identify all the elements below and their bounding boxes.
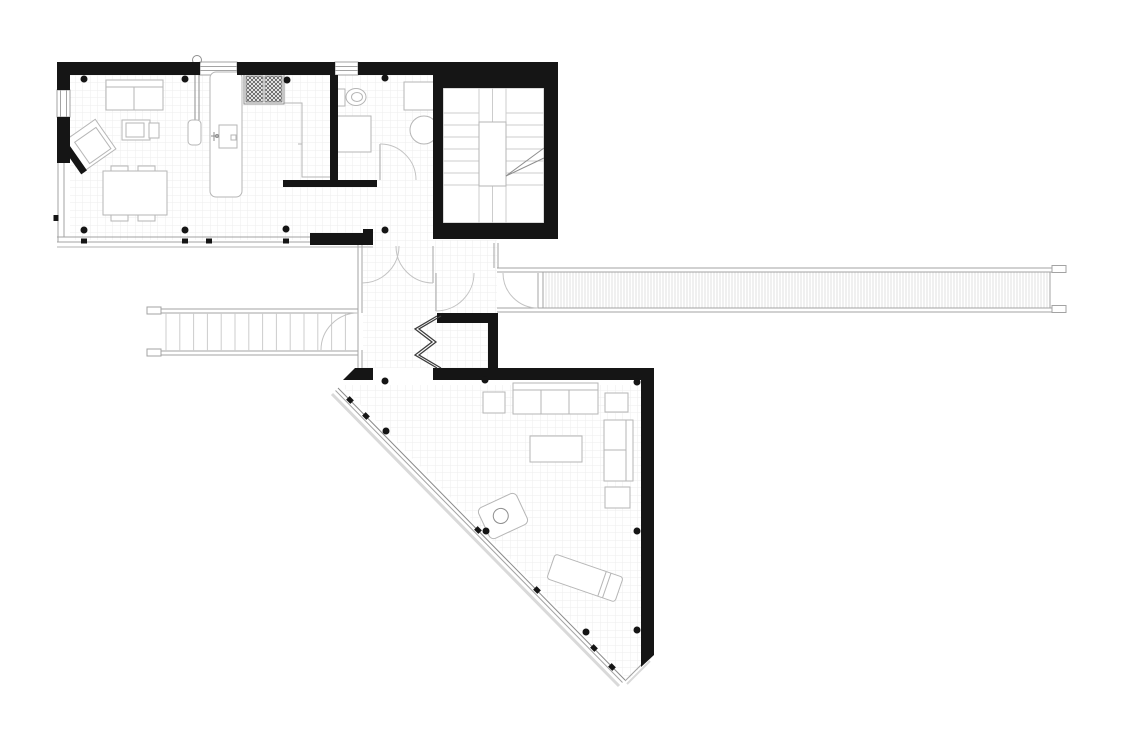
dining-table (103, 171, 167, 215)
wall-north-a (57, 62, 200, 75)
wall-north-b (237, 62, 335, 75)
ottoman (149, 123, 159, 138)
column-dot (634, 528, 641, 535)
mullion-tick (206, 239, 212, 244)
winter-wall-north-tip (343, 368, 373, 380)
shower-tray (337, 116, 371, 152)
bridge-rail-cap (1052, 266, 1066, 273)
cooktop-burner (265, 76, 282, 102)
armchair-seat (126, 123, 144, 137)
side-table (605, 487, 630, 508)
stair-tower-wall-west (433, 62, 443, 225)
column-dot (634, 627, 641, 634)
floor-plan-svg (0, 0, 1125, 750)
washbasin-counter (404, 82, 436, 110)
wall-bath-south (283, 180, 377, 187)
stair-tower-wall-north (433, 62, 558, 88)
column-dot (382, 227, 389, 234)
bridge-door-swing (503, 273, 538, 308)
stair-newel (479, 122, 506, 186)
floor-plan-page (0, 0, 1125, 750)
column-dot (81, 227, 88, 234)
floor-plan-drawing (54, 56, 1067, 687)
column-dot (284, 77, 291, 84)
column-dot (634, 379, 641, 386)
window-left (57, 90, 70, 117)
column-dot (383, 428, 390, 435)
column-dot (482, 377, 489, 384)
winter-sofa (513, 383, 598, 414)
exterior-stair-rail-cap (147, 349, 161, 356)
closet-wall-north (437, 313, 492, 323)
side-table (605, 393, 628, 412)
coffee-table (530, 436, 582, 462)
mullion-tick (283, 239, 289, 244)
stair-tower-wall-south (433, 223, 558, 239)
column-dot (382, 75, 389, 82)
wall-south-step (363, 229, 373, 245)
wall-north-c (358, 62, 433, 75)
stair-tower-wall-east (544, 62, 558, 239)
cooktop-burner (246, 76, 263, 102)
winter-wall-east (641, 368, 654, 667)
column-dot (283, 226, 290, 233)
exterior-stair-rail-cap (147, 307, 161, 314)
side-table (483, 392, 505, 413)
toilet-bowl-inner (352, 93, 363, 102)
wall-west-a (57, 62, 70, 90)
wall-fixture (188, 120, 201, 145)
bridge-rail-cap (1052, 306, 1066, 313)
mullion-tick (81, 239, 87, 244)
mullion-tick (54, 215, 59, 221)
column-dot (81, 76, 88, 83)
kitchen-sink-basin (231, 135, 236, 140)
window-top-2 (335, 62, 358, 75)
column-dot (182, 76, 189, 83)
column-dot (182, 227, 189, 234)
column-dot (483, 528, 490, 535)
column-dot (583, 629, 590, 636)
stair-door-swing (321, 313, 358, 350)
wall-kitchen-bath (330, 75, 338, 187)
column-dot (382, 378, 389, 385)
toilet-cistern (337, 89, 345, 106)
closet-floor (437, 323, 488, 368)
wall-west-b (57, 117, 70, 163)
mullion-tick (182, 239, 188, 244)
winter-wall-north (433, 368, 654, 380)
